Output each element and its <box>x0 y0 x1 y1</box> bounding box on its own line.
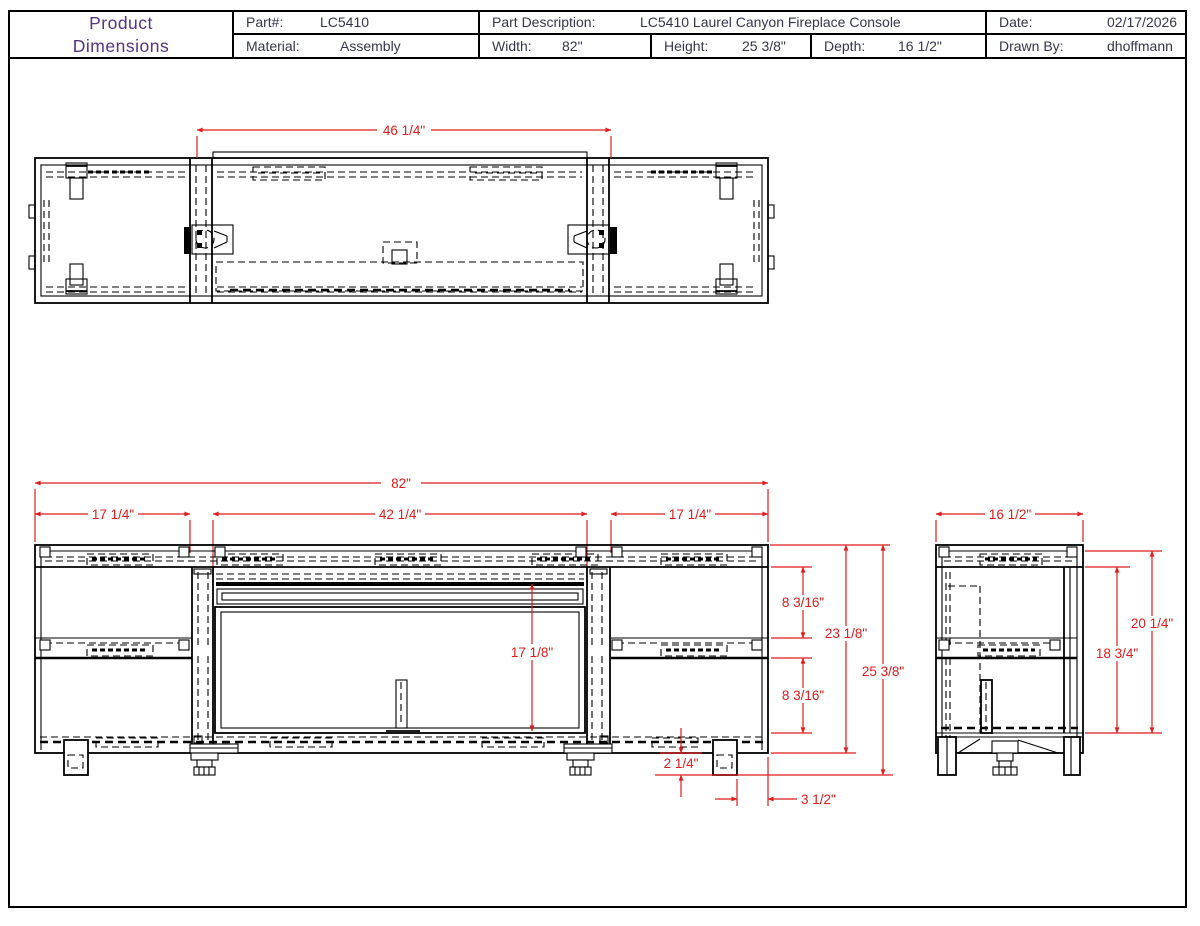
dim-label-overall-height: 25 3/8" <box>862 664 905 679</box>
material-value: Assembly <box>340 38 401 54</box>
dim-label-case-height: 23 1/8" <box>825 626 868 641</box>
top-view-leg-blocks <box>66 163 737 294</box>
dim-top-center-width: 46 1/4" <box>197 122 611 158</box>
front-view: 82" 17 1/4" 42 1/4" 17 1/4" <box>35 475 907 807</box>
part-number-label: Part#: <box>246 14 304 30</box>
date-label: Date: <box>999 14 1091 30</box>
part-number-value: LC5410 <box>320 14 369 30</box>
width-value: 82" <box>562 38 583 54</box>
side-view: 16 1/2" <box>936 506 1177 775</box>
dim-label-leg-height: 2 1/4" <box>664 756 699 771</box>
top-view: 46 1/4" <box>29 122 774 303</box>
drawn-by-value: dhoffmann <box>1107 38 1173 54</box>
size-cells: Width: 82" Height: 25 3/8" Depth: 16 1/2… <box>478 35 985 58</box>
dim-label-leg-inset: 3 1/2" <box>801 792 836 807</box>
side-legs <box>938 737 1080 775</box>
part-description-cell: Part Description: LC5410 Laurel Canyon F… <box>478 12 985 35</box>
height-label: Height: <box>664 38 726 54</box>
dim-front-opening-height: 17 1/8" <box>506 584 558 731</box>
top-view-hinge-left <box>184 225 233 254</box>
material-cell: Material: Assembly <box>232 35 478 58</box>
drawn-by-cell: Drawn By: dhoffmann <box>985 35 1185 58</box>
drawn-by-label: Drawn By: <box>999 38 1091 54</box>
dim-side-heights: 18 3/4" 20 1/4" <box>1085 551 1177 733</box>
width-label: Width: <box>492 38 546 54</box>
dim-label-front-opening-height: 17 1/8" <box>511 645 554 660</box>
dim-side-depth: 16 1/2" <box>936 506 1083 542</box>
drawing-canvas: 46 1/4" 82" 17 1/4 <box>0 0 1200 926</box>
dim-label-front-center-width: 42 1/4" <box>379 507 422 522</box>
date-cell: Date: 02/17/2026 <box>985 12 1185 35</box>
page-title-line1: Product <box>89 12 153 35</box>
height-value: 25 3/8" <box>742 38 786 54</box>
width-cell: Width: 82" <box>478 35 650 58</box>
part-description-value: LC5410 Laurel Canyon Fireplace Console <box>640 14 901 30</box>
part-description-label: Part Description: <box>492 14 624 30</box>
dim-front-section-widths: 17 1/4" 42 1/4" 17 1/4" <box>35 506 768 572</box>
dim-label-front-overall-width: 82" <box>391 476 411 491</box>
drawing-sheet: Product Dimensions Part#: LC5410 Part De… <box>0 0 1200 926</box>
depth-cell: Depth: 16 1/2" <box>810 35 985 58</box>
depth-value: 16 1/2" <box>898 38 942 54</box>
part-number-cell: Part#: LC5410 <box>232 12 478 35</box>
dim-label-front-left-width: 17 1/4" <box>92 507 135 522</box>
front-legs <box>64 740 737 775</box>
dim-front-heights: 8 3/16" 8 3/16" 23 1/8" 25 3/8" <box>655 545 907 775</box>
page-title: Product Dimensions <box>10 12 232 57</box>
dim-label-side-case-height: 18 3/4" <box>1096 646 1139 661</box>
dim-label-lower-compartment: 8 3/16" <box>782 688 825 703</box>
date-value: 02/17/2026 <box>1107 14 1177 30</box>
dim-label-top-center: 46 1/4" <box>383 123 426 138</box>
dim-label-upper-compartment: 8 3/16" <box>782 595 825 610</box>
dim-label-front-right-width: 17 1/4" <box>669 507 712 522</box>
depth-label: Depth: <box>824 38 882 54</box>
height-cell: Height: 25 3/8" <box>650 35 810 58</box>
title-block: Product Dimensions Part#: LC5410 Part De… <box>8 10 1187 59</box>
dim-label-side-overall-height: 20 1/4" <box>1131 616 1174 631</box>
material-label: Material: <box>246 38 324 54</box>
dim-label-side-depth: 16 1/2" <box>989 507 1032 522</box>
page-title-line2: Dimensions <box>73 35 169 58</box>
